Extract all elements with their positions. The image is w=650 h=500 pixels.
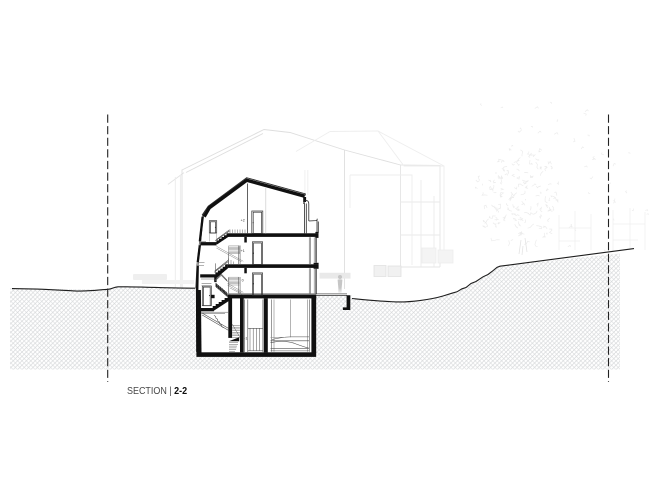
svg-text:+2: +2 [241, 219, 245, 223]
svg-text:+1: +1 [241, 249, 245, 253]
svg-text:-1: -1 [244, 337, 247, 341]
svg-text:0: 0 [242, 279, 244, 283]
